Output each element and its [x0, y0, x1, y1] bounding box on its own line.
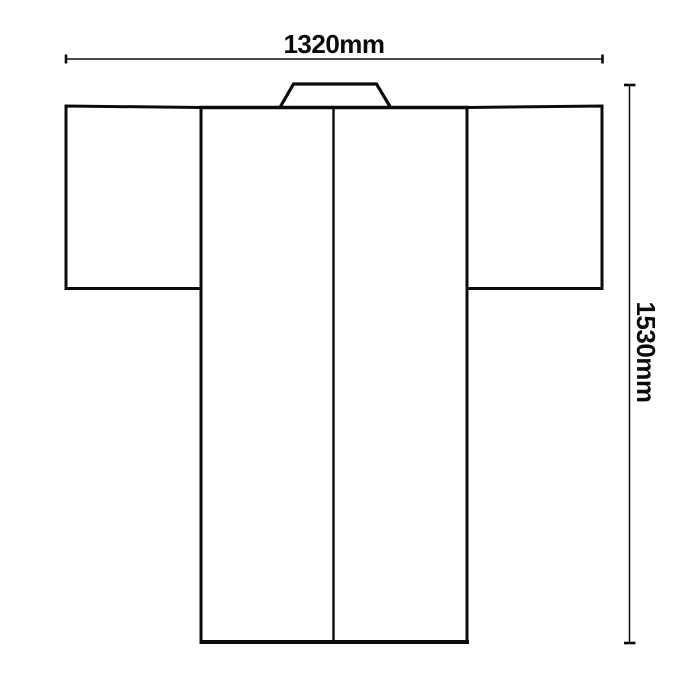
- kimono-outline: [65, 84, 604, 643]
- width-dimension-label: 1320mm: [283, 29, 384, 59]
- height-dimension-label: 1530mm: [631, 301, 661, 402]
- kimono-dimension-diagram: 1320mm 1530mm: [0, 0, 700, 700]
- diagram-canvas: 1320mm 1530mm: [0, 0, 700, 700]
- collar-outline: [281, 84, 391, 107]
- left-sleeve-outline: [66, 106, 201, 290]
- right-sleeve-outline: [467, 106, 602, 290]
